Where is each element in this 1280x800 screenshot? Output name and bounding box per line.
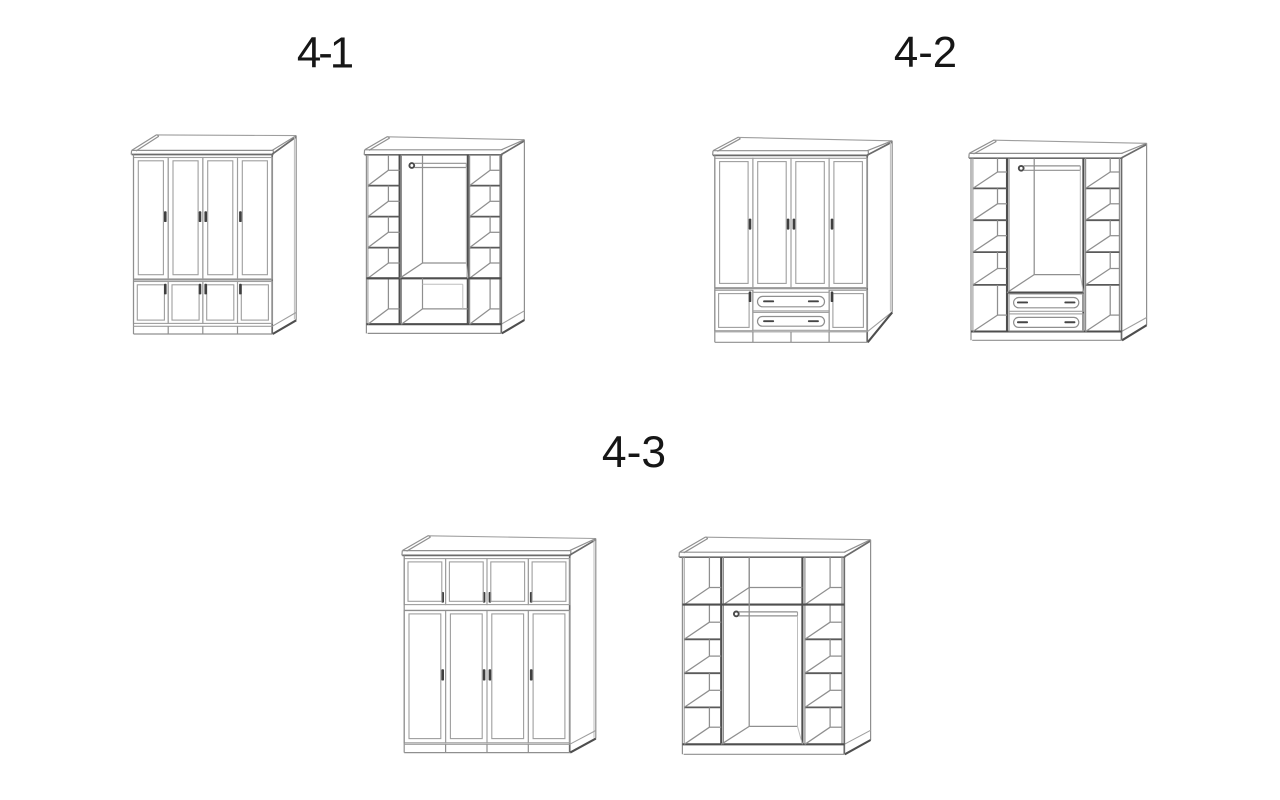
svg-text:4-1: 4-1	[297, 29, 353, 78]
svg-text:4-3: 4-3	[602, 428, 666, 477]
svg-text:4-2: 4-2	[894, 28, 957, 77]
